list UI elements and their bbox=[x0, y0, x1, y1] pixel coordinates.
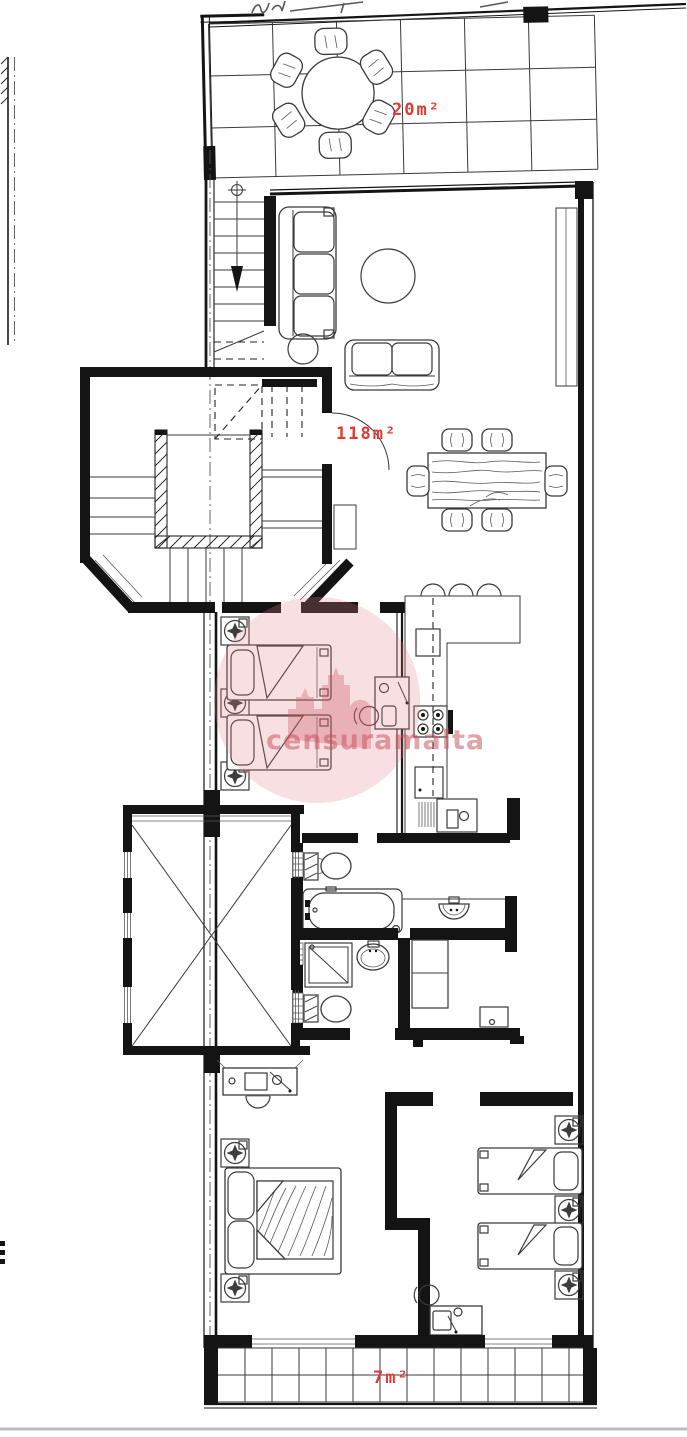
sofa-small bbox=[345, 340, 439, 390]
watermark-circle bbox=[214, 597, 420, 803]
kitchen-sink-unit bbox=[416, 629, 440, 656]
window-strip bbox=[125, 913, 131, 938]
rug bbox=[361, 249, 415, 303]
terrace-chair bbox=[315, 28, 348, 55]
window-strip bbox=[293, 993, 303, 1023]
bathtub bbox=[303, 887, 402, 935]
dressing-desk bbox=[217, 1060, 303, 1095]
dining-area bbox=[407, 429, 567, 531]
stair-core bbox=[80, 367, 405, 613]
stool bbox=[246, 1096, 270, 1108]
nightstand bbox=[221, 1274, 249, 1302]
kitchen-counter bbox=[405, 584, 520, 833]
sofa-large bbox=[279, 207, 336, 339]
window-recess bbox=[556, 208, 577, 386]
kitchen bbox=[405, 584, 520, 840]
single-bed bbox=[478, 1223, 582, 1269]
edge-marks bbox=[0, 1241, 5, 1264]
dining-table bbox=[428, 453, 546, 508]
double-bed bbox=[225, 1168, 341, 1274]
window-strip bbox=[125, 852, 131, 878]
breakfast-stools bbox=[421, 584, 501, 596]
floor-plan: 20m² 118m² 7m² censuramalta bbox=[0, 0, 687, 1437]
watermark-text: censuramalta bbox=[266, 725, 485, 756]
shower bbox=[305, 943, 352, 987]
stairs-above-dashed bbox=[215, 379, 317, 439]
appliance-grille bbox=[419, 802, 434, 827]
walk-in-closet bbox=[395, 938, 524, 1047]
dining-chair bbox=[482, 509, 512, 531]
stair-treads bbox=[214, 202, 264, 321]
dining-chair bbox=[482, 429, 512, 451]
desk bbox=[430, 1306, 482, 1335]
area-label-terrace: 20m² bbox=[392, 100, 441, 120]
area-label-balcony: 7m² bbox=[373, 1368, 410, 1388]
terrace-chair bbox=[319, 132, 352, 159]
nightstand bbox=[221, 1139, 249, 1167]
bedroom-twin-right bbox=[414, 1116, 583, 1335]
single-bed bbox=[478, 1148, 582, 1194]
dining-chair bbox=[407, 466, 429, 496]
terrace-tiles bbox=[208, 15, 597, 178]
elevator-shaft bbox=[155, 430, 262, 548]
floor-plan-drawing bbox=[0, 0, 687, 1437]
bedroom-master bbox=[217, 1060, 341, 1302]
wall-basin bbox=[439, 897, 469, 919]
dining-chair bbox=[442, 429, 472, 451]
window-strip bbox=[125, 987, 131, 1023]
dining-chair bbox=[545, 466, 567, 496]
site-boundary bbox=[0, 57, 15, 1264]
handwritten-note-partial bbox=[252, 1, 508, 13]
terrace-walls bbox=[200, 6, 552, 180]
dishwasher bbox=[437, 799, 477, 832]
oven bbox=[415, 767, 443, 798]
oval-basin bbox=[357, 941, 389, 970]
toilet bbox=[304, 995, 351, 1022]
area-label-internal: 118m² bbox=[336, 424, 397, 444]
stair-direction-arrow bbox=[231, 196, 243, 292]
dining-chair bbox=[442, 509, 472, 531]
watermark bbox=[214, 597, 420, 803]
roof-terrace bbox=[200, 5, 598, 180]
toilet bbox=[304, 853, 351, 880]
window-strip bbox=[293, 852, 303, 877]
duct bbox=[334, 505, 356, 549]
